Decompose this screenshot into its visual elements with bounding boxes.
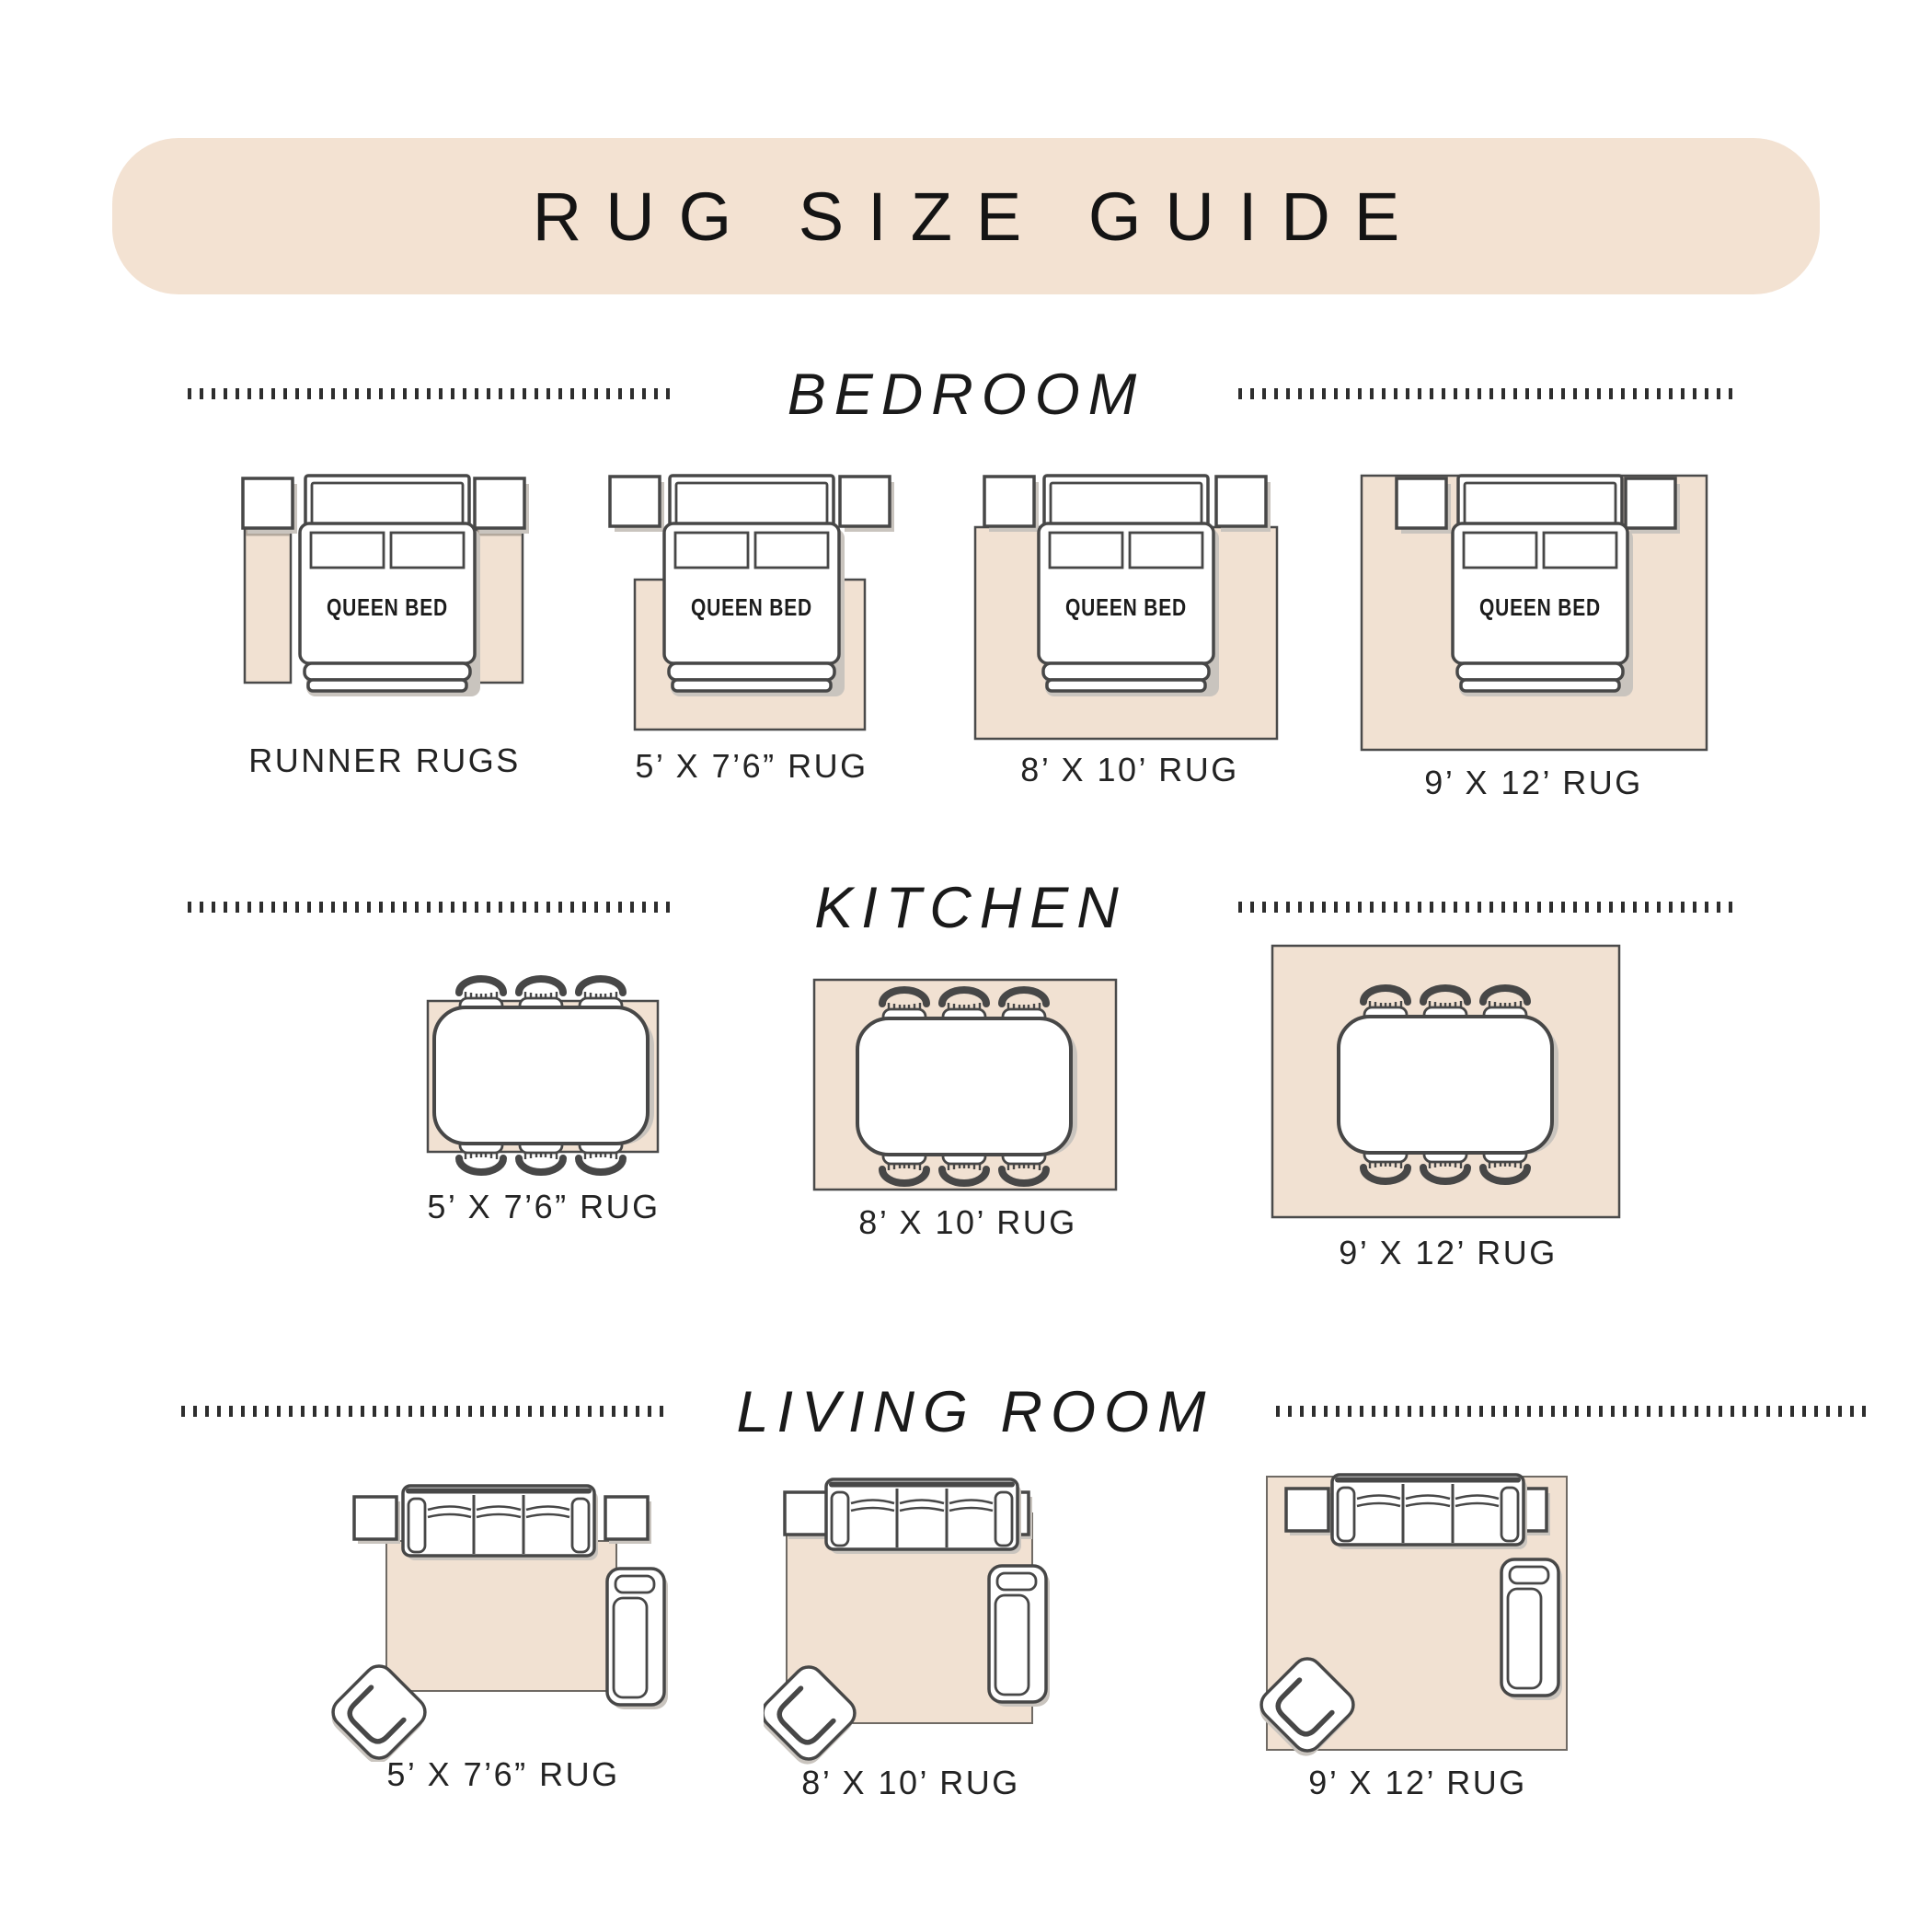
runner-rug-shape <box>477 526 523 683</box>
dotted-divider <box>188 902 677 913</box>
nightstand-icon <box>1397 478 1451 534</box>
rug-size-label: 9’ X 12’ RUG <box>1424 764 1642 802</box>
dotted-divider <box>1238 388 1741 399</box>
nightstand-icon <box>984 477 1039 532</box>
dotted-divider <box>188 388 677 399</box>
nightstand-icon <box>840 477 894 532</box>
side-table-icon <box>785 1492 831 1539</box>
nightstand-icon <box>1626 478 1680 534</box>
bedroom-8x10-diagram <box>966 465 1283 750</box>
bedroom-9x12-diagram <box>1348 465 1720 759</box>
kitchen-9x12-diagram <box>1260 934 1633 1233</box>
dining-set-icon <box>857 990 1077 1183</box>
side-table-icon <box>605 1497 651 1544</box>
section-heading-bedroom: BEDROOM <box>788 362 1145 428</box>
dotted-divider <box>1238 902 1741 913</box>
rug-size-label: 8’ X 10’ RUG <box>1020 751 1238 789</box>
chaise-icon <box>1501 1559 1562 1700</box>
nightstand-icon <box>475 478 529 534</box>
dotted-divider <box>1276 1406 1874 1417</box>
dining-set-icon <box>1339 988 1558 1181</box>
living-room-9x12-diagram <box>1251 1458 1582 1766</box>
bedroom-5x76-diagram <box>589 465 920 745</box>
kitchen-8x10-diagram <box>805 966 1127 1196</box>
sofa-icon <box>826 1479 1021 1554</box>
rug-size-label: 8’ X 10’ RUG <box>858 1203 1076 1242</box>
sofa-icon <box>403 1486 598 1560</box>
chaise-icon <box>989 1566 1050 1707</box>
kitchen-5x76-diagram <box>419 969 667 1190</box>
queen-bed-icon <box>1453 476 1633 696</box>
side-table-icon <box>354 1497 400 1544</box>
title-banner: RUG SIZE GUIDE <box>112 138 1820 294</box>
dining-set-icon <box>434 979 654 1172</box>
chaise-icon <box>607 1569 668 1709</box>
runner-rug-shape <box>245 526 291 683</box>
rug-size-label: 9’ X 12’ RUG <box>1339 1234 1557 1272</box>
queen-bed-icon <box>300 476 480 696</box>
rug-size-label: RUNNER RUGS <box>248 742 521 780</box>
living-room-8x10-diagram <box>764 1463 1058 1771</box>
rug-size-label: 5’ X 7’6” RUG <box>427 1188 660 1226</box>
nightstand-icon <box>1216 477 1271 532</box>
living-room-5x76-diagram <box>327 1467 685 1762</box>
rug-size-guide-infographic: QUEEN BED <box>0 0 1932 1932</box>
rug-size-label: 9’ X 12’ RUG <box>1308 1764 1526 1802</box>
nightstand-icon <box>243 478 297 534</box>
rug-size-label: 8’ X 10’ RUG <box>801 1764 1019 1802</box>
bedroom-runner-rugs-diagram <box>237 465 536 704</box>
page-title: RUG SIZE GUIDE <box>509 178 1423 256</box>
sofa-icon <box>1332 1475 1527 1549</box>
rug-shape <box>386 1541 616 1691</box>
queen-bed-icon <box>664 476 845 696</box>
rug-size-label: 5’ X 7’6” RUG <box>386 1755 619 1794</box>
section-heading-living-room: LIVING ROOM <box>736 1379 1213 1445</box>
section-heading-kitchen: KITCHEN <box>814 875 1127 941</box>
nightstand-icon <box>610 477 664 532</box>
queen-bed-icon <box>1039 476 1219 696</box>
rug-size-label: 5’ X 7’6” RUG <box>635 747 868 786</box>
side-table-icon <box>1286 1489 1332 1535</box>
dotted-divider <box>181 1406 669 1417</box>
